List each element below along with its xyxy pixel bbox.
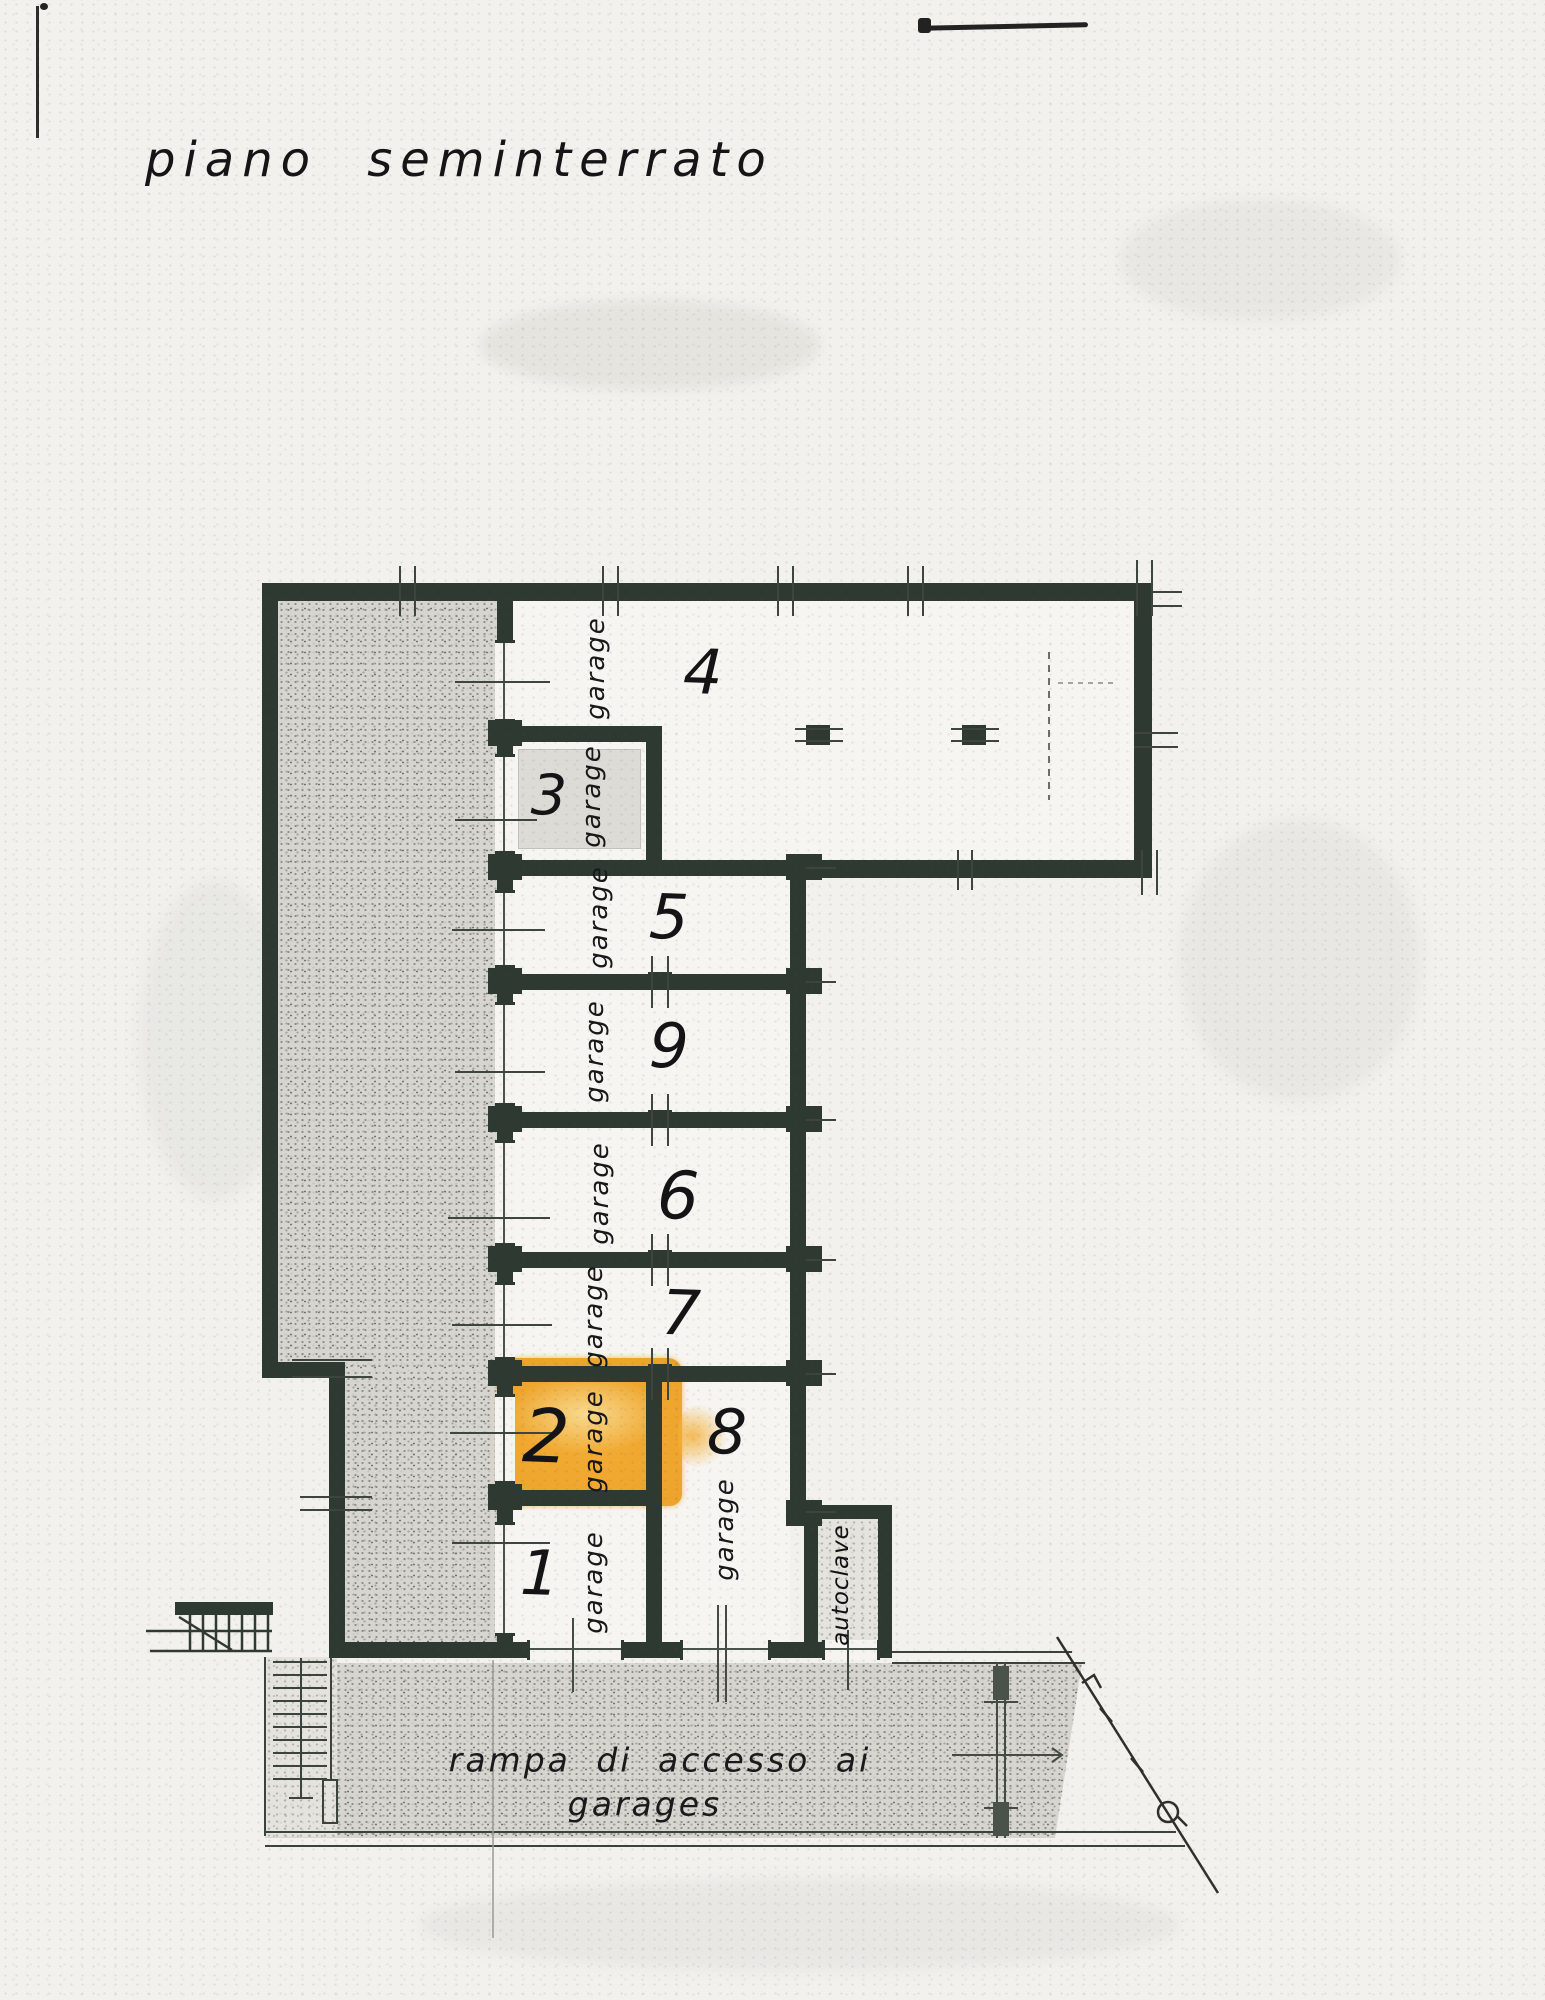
autoclave-label: autoclave	[828, 1524, 854, 1646]
room-number-2: 2	[521, 1393, 571, 1481]
ramp-label-line1: rampa di accesso ai	[449, 1741, 871, 1780]
floor-plan-scan: piano seminterrato	[0, 0, 1545, 2000]
room-number-8: 8	[706, 1395, 748, 1469]
garage-label-6: garage	[585, 1141, 615, 1245]
garage-label-8: garage	[710, 1477, 740, 1581]
garage-label-9: garage	[580, 999, 610, 1103]
ramp-label-line2: garages	[568, 1785, 722, 1824]
garage-label-2: garage	[579, 1389, 609, 1493]
scan-artifact-top-right-blob	[918, 18, 931, 33]
linework-layer	[0, 0, 1545, 2000]
garage-label-4: garage	[581, 616, 611, 720]
room-number-5: 5	[648, 880, 690, 954]
scan-artifact-left-dot	[40, 3, 48, 10]
garage-label-7: garage	[579, 1264, 609, 1368]
garage-label-5: garage	[584, 865, 614, 969]
room-number-9: 9	[648, 1009, 690, 1083]
room-number-7: 7	[660, 1276, 702, 1350]
garage-label-3: garage	[577, 744, 607, 848]
room-number-4: 4	[682, 635, 724, 709]
page-title: piano seminterrato	[145, 132, 774, 188]
room-number-1: 1	[519, 1536, 561, 1610]
garage-label-1: garage	[579, 1530, 609, 1634]
scan-artifact-left-edge	[36, 6, 39, 138]
room-number-3: 3	[530, 763, 568, 829]
room-number-6: 6	[656, 1157, 701, 1235]
